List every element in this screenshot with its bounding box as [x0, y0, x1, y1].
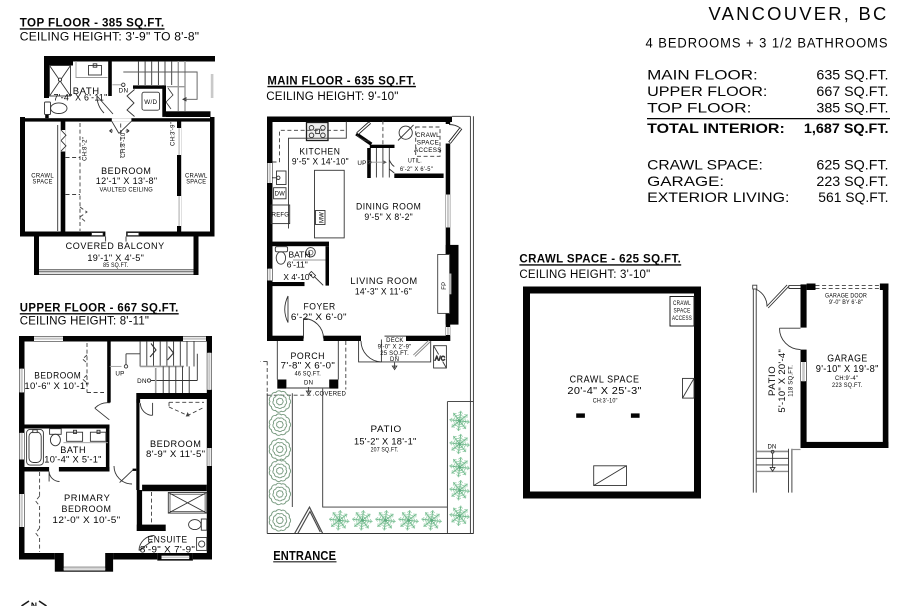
svg-text:N: N [31, 601, 37, 606]
svg-text:CRAWL SPACE - 625 SQ.FT.: CRAWL SPACE - 625 SQ.FT. [519, 252, 681, 266]
svg-text:UP: UP [357, 160, 366, 167]
svg-text:TOP FLOOR - 385 SQ.FT.: TOP FLOOR - 385 SQ.FT. [20, 16, 165, 30]
svg-text:CH:3'-9": CH:3'-9" [171, 122, 177, 146]
svg-text:1,687 SQ.FT.: 1,687 SQ.FT. [804, 120, 889, 136]
svg-text:VANCOUVER, BC: VANCOUVER, BC [709, 4, 889, 24]
svg-text:MAIN FLOOR:: MAIN FLOOR: [647, 67, 758, 83]
svg-text:5'-10" X 20'-4": 5'-10" X 20'-4" [776, 349, 787, 413]
svg-text:EXTERIOR LIVING:: EXTERIOR LIVING: [647, 189, 789, 205]
svg-text:7'-8" X 6'-0": 7'-8" X 6'-0" [281, 359, 336, 370]
svg-text:DN: DN [767, 445, 776, 451]
svg-text:118 SQ.FT.: 118 SQ.FT. [789, 365, 795, 397]
svg-text:PATIO: PATIO [371, 424, 402, 435]
svg-text:6'-2" X 6'-5": 6'-2" X 6'-5" [400, 166, 433, 173]
svg-text:MAIN FLOOR - 635 SQ.FT.: MAIN FLOOR - 635 SQ.FT. [267, 73, 416, 87]
svg-text:8'-9" X 7'-9": 8'-9" X 7'-9" [140, 543, 195, 554]
svg-text:15'-2" X 18'-1": 15'-2" X 18'-1" [354, 435, 417, 446]
svg-text:625 SQ.FT.: 625 SQ.FT. [816, 157, 888, 173]
svg-text:20'-4" X 25'-3": 20'-4" X 25'-3" [567, 386, 642, 397]
svg-text:4 BEDROOMS + 3 1/2 BATHROOMS: 4 BEDROOMS + 3 1/2 BATHROOMS [646, 36, 889, 51]
svg-text:X 4'-10": X 4'-10" [283, 273, 312, 282]
svg-text:GARAGE:: GARAGE: [647, 173, 724, 189]
svg-text:W/D: W/D [144, 99, 157, 106]
svg-text:A/C: A/C [435, 356, 446, 362]
svg-text:REFG: REFG [272, 212, 290, 218]
svg-text:UPPER FLOOR - 667 SQ.FT.: UPPER FLOOR - 667 SQ.FT. [20, 301, 179, 315]
svg-text:DN: DN [304, 380, 313, 386]
svg-text:9'-0" X 2'-9": 9'-0" X 2'-9" [378, 344, 412, 350]
svg-text:UPPER FLOOR:: UPPER FLOOR: [647, 83, 767, 99]
svg-text:CEILING HEIGHT: 3'-9" TO 8'-8": CEILING HEIGHT: 3'-9" TO 8'-8" [20, 29, 199, 43]
svg-text:SPACE: SPACE [417, 140, 439, 147]
svg-text:CEILING HEIGHT: 3'-10": CEILING HEIGHT: 3'-10" [519, 267, 650, 281]
svg-text:635 SQ.FT.: 635 SQ.FT. [816, 67, 888, 83]
svg-text:CRAWL SPACE:: CRAWL SPACE: [647, 157, 763, 173]
svg-text:CRAWL: CRAWL [416, 132, 440, 139]
svg-text:12'-1" X 13'-8": 12'-1" X 13'-8" [96, 175, 158, 186]
svg-text:ACCESS: ACCESS [672, 315, 692, 322]
svg-text:223 SQ.FT.: 223 SQ.FT. [832, 383, 862, 389]
svg-text:COVERED: COVERED [315, 391, 347, 397]
svg-text:667 SQ.FT.: 667 SQ.FT. [816, 83, 888, 99]
svg-text:CH:3'-10": CH:3'-10" [593, 398, 618, 404]
svg-text:SPACE: SPACE [674, 307, 691, 314]
svg-text:207 SQ.FT.: 207 SQ.FT. [371, 448, 399, 454]
svg-text:MW: MW [319, 212, 325, 223]
svg-text:85 SQ.FT.: 85 SQ.FT. [103, 263, 129, 269]
svg-text:385 SQ.FT.: 385 SQ.FT. [816, 99, 888, 115]
svg-text:14'-3" X 11'-6": 14'-3" X 11'-6" [355, 286, 412, 297]
svg-text:DN: DN [390, 357, 399, 363]
svg-text:223 SQ.FT.: 223 SQ.FT. [816, 173, 888, 189]
svg-text:SPACE: SPACE [33, 179, 53, 186]
svg-text:​DECK: ​DECK [386, 338, 403, 344]
svg-text:TOP FLOOR:: TOP FLOOR: [647, 99, 751, 115]
svg-text:PRIMARY: PRIMARY [64, 493, 110, 504]
svg-text:CH:8'-2": CH:8'-2" [83, 137, 89, 161]
svg-text:7'-4" X 6'-11": 7'-4" X 6'-11" [54, 92, 108, 103]
svg-text:DN: DN [119, 88, 129, 95]
svg-text:GARAGE: GARAGE [827, 353, 868, 364]
svg-text:CEILING HEIGHT: 8'-11": CEILING HEIGHT: 8'-11" [20, 314, 149, 328]
svg-text:9'-10" X 19'-8": 9'-10" X 19'-8" [816, 364, 879, 375]
svg-text:9'-5" X 8'-2": 9'-5" X 8'-2" [364, 211, 413, 222]
svg-text:10'-4" X 5'-1": 10'-4" X 5'-1" [44, 454, 102, 465]
svg-text:SPACE: SPACE [186, 179, 206, 186]
svg-text:ACCESS: ACCESS [414, 147, 442, 154]
svg-text:6'-11": 6'-11" [287, 260, 308, 269]
svg-text:9'-5" X 14'-10": 9'-5" X 14'-10" [292, 156, 349, 167]
svg-text:UTIL.: UTIL. [408, 157, 422, 164]
svg-text:CH:9'-4": CH:9'-4" [835, 376, 858, 382]
svg-text:6'-2" X 6'-0": 6'-2" X 6'-0" [291, 311, 347, 322]
svg-text:CH:8'-10": CH:8'-10" [121, 130, 127, 157]
svg-text:19'-1" X 4'-5": 19'-1" X 4'-5" [87, 252, 144, 263]
svg-text:561 SQ.FT.: 561 SQ.FT. [818, 189, 888, 205]
svg-text:46 SQ.FT.: 46 SQ.FT. [295, 372, 322, 378]
svg-text:ENTRANCE: ENTRANCE [273, 549, 336, 563]
svg-text:DN: DN [137, 378, 147, 385]
svg-text:12'-0" X 10'-5": 12'-0" X 10'-5" [52, 514, 120, 525]
svg-text:BATH: BATH [289, 251, 311, 260]
svg-text:CRAWL SPACE: CRAWL SPACE [570, 375, 640, 386]
svg-text:UP: UP [115, 371, 124, 378]
svg-text:CEILING HEIGHT: 9'-10": CEILING HEIGHT: 9'-10" [266, 89, 398, 103]
svg-text:FP: FP [442, 282, 448, 290]
svg-text:CRAWL: CRAWL [673, 300, 691, 307]
svg-text:9'-0" BY 6'-8": 9'-0" BY 6'-8" [829, 299, 863, 306]
svg-text:COVERED BALCONY: COVERED BALCONY [66, 241, 165, 252]
svg-text:TOTAL INTERIOR:: TOTAL INTERIOR: [647, 120, 785, 136]
svg-text:VAULTED CEILING: VAULTED CEILING [100, 188, 154, 194]
svg-text:8'-9" X 11'-5": 8'-9" X 11'-5" [146, 448, 205, 459]
svg-text:10'-6" X 10'-1": 10'-6" X 10'-1" [24, 380, 89, 391]
svg-text:DW: DW [275, 192, 286, 198]
